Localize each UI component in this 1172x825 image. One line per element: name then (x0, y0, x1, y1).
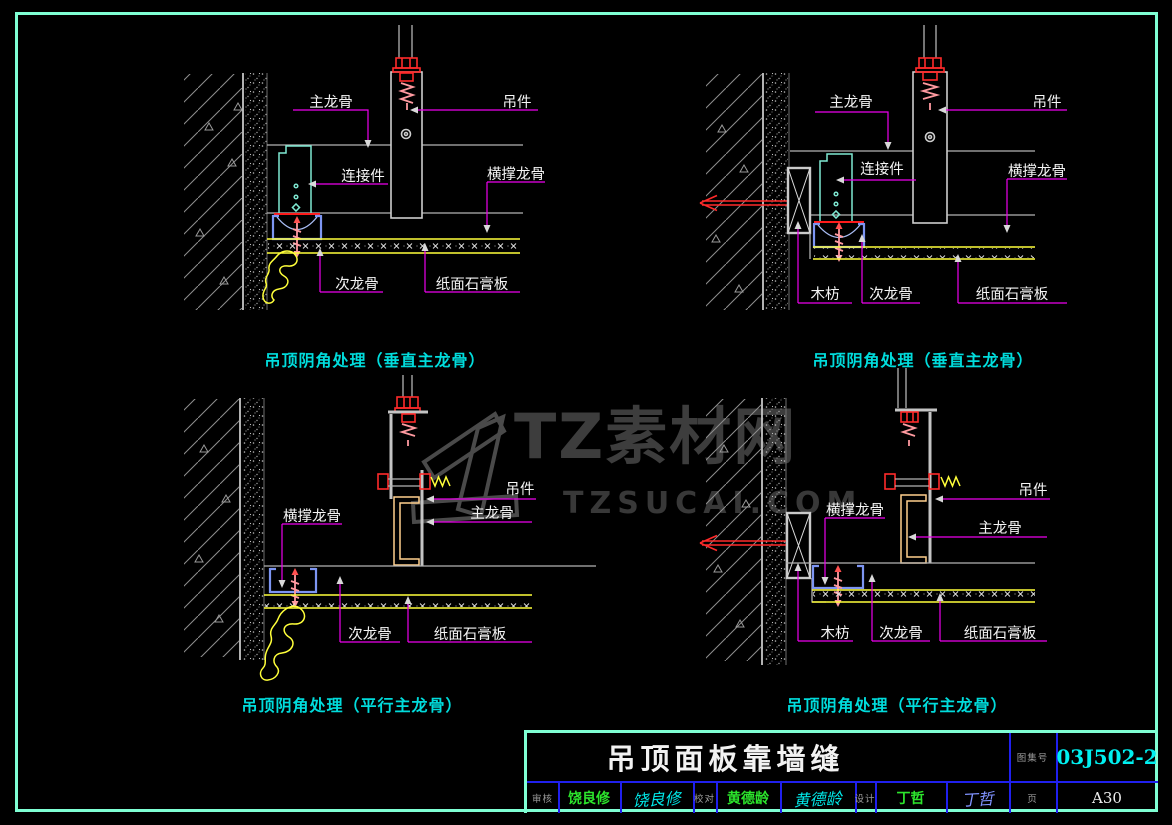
main-keel-c-profile (901, 495, 926, 563)
label-gypsum-board: 纸面石膏板 (436, 275, 509, 293)
designer-signature: 丁哲 (945, 781, 1009, 814)
wall-section (184, 398, 264, 660)
label-secondary-keel: 次龙骨 (869, 286, 913, 303)
gypsum-board (264, 595, 532, 608)
gypsum-board (813, 247, 1035, 259)
label-wood-block: 木枋 (811, 286, 840, 303)
cad-drawing-sheet: TZ素材网 TZSUCAI.COM (0, 0, 1172, 825)
label-secondary-keel: 次龙骨 (879, 625, 923, 642)
label-wood-block: 木枋 (821, 625, 850, 642)
label-main-keel: 主龙骨 (829, 94, 873, 111)
label-main-keel: 主龙骨 (978, 520, 1022, 537)
screw-arrow-icon (294, 216, 301, 223)
caption-bottom-left: 吊顶阴角处理（平行主龙骨） (222, 692, 482, 716)
drawing-title: 吊顶面板靠墙缝 (527, 733, 1009, 781)
label-hanger: 吊件 (503, 94, 532, 111)
caption-top-left: 吊顶阴角处理（垂直主龙骨） (245, 347, 505, 371)
label-secondary-keel: 次龙骨 (348, 626, 392, 643)
main-keel-section (274, 146, 320, 215)
label-cross-brace-keel: 横撑龙骨 (826, 502, 884, 519)
gypsum-board (267, 239, 520, 253)
label-hanger: 吊件 (1019, 482, 1048, 499)
page-number: A30 (1056, 783, 1158, 813)
main-keel-section (814, 154, 864, 223)
atlas-number-label: 图集号 (1009, 733, 1056, 781)
label-cross-brace-keel: 横撑龙骨 (1008, 163, 1066, 180)
label-gypsum-board: 纸面石膏板 (964, 624, 1037, 642)
detail-bottom-left: 横撑龙骨 吊件 主龙骨 次龙骨 纸面石膏板 (170, 360, 600, 690)
detail-top-right: 主龙骨 吊件 连接件 横撑龙骨 木枋 次龙骨 纸面石膏板 (690, 20, 1110, 316)
title-block: 吊顶面板靠墙缝 图集号 03J502-2 审核 饶良修 饶良修 校对 黄德龄 黄… (524, 730, 1158, 813)
label-main-keel: 主龙骨 (309, 94, 353, 111)
label-main-keel: 主龙骨 (470, 505, 514, 522)
label-hanger: 吊件 (1033, 94, 1062, 111)
wall-section (184, 73, 267, 310)
atlas-number-value: 03J502-2 (1056, 733, 1158, 781)
detail-top-left: 主龙骨 吊件 连接件 横撑龙骨 次龙骨 纸面石膏板 (170, 20, 565, 316)
designer-name: 丁哲 (875, 783, 946, 813)
label-hanger: 吊件 (506, 481, 535, 498)
proofreader-name: 黄德龄 (716, 783, 780, 813)
label-secondary-keel: 次龙骨 (335, 276, 379, 293)
label-cross-brace-keel: 横撑龙骨 (283, 508, 341, 525)
label-gypsum-board: 纸面石膏板 (976, 285, 1049, 303)
wall-section (706, 73, 789, 310)
caption-bottom-right: 吊顶阴角处理（平行主龙骨） (767, 692, 1027, 716)
main-keel-c-profile (394, 497, 419, 565)
detail-bottom-right: 横撑龙骨 吊件 主龙骨 木枋 次龙骨 纸面石膏板 (690, 360, 1110, 690)
label-connector: 连接件 (860, 161, 904, 178)
wood-block (788, 168, 810, 259)
wall-section (706, 398, 786, 665)
label-connector: 连接件 (341, 168, 385, 185)
reviewer-name: 饶良修 (558, 783, 620, 813)
label-cross-brace-keel: 横撑龙骨 (487, 166, 545, 183)
sealant-bead (261, 606, 305, 680)
proofreader-signature: 黄德龄 (779, 781, 855, 815)
label-gypsum-board: 纸面石膏板 (434, 625, 507, 643)
hanger-assembly (378, 375, 450, 566)
gypsum-board (812, 590, 1035, 602)
hanger-assembly (885, 368, 960, 563)
designer-label: 设计 (855, 783, 875, 813)
hanger-assembly (391, 25, 422, 218)
reviewer-signature: 饶良修 (619, 781, 693, 815)
reviewer-label: 审核 (527, 783, 558, 813)
proofreader-label: 校对 (693, 783, 716, 813)
sealant-bead (263, 251, 297, 303)
page-label: 页 (1009, 783, 1056, 813)
hanger-assembly (913, 25, 947, 223)
caption-top-right: 吊顶阴角处理（垂直主龙骨） (793, 347, 1053, 371)
